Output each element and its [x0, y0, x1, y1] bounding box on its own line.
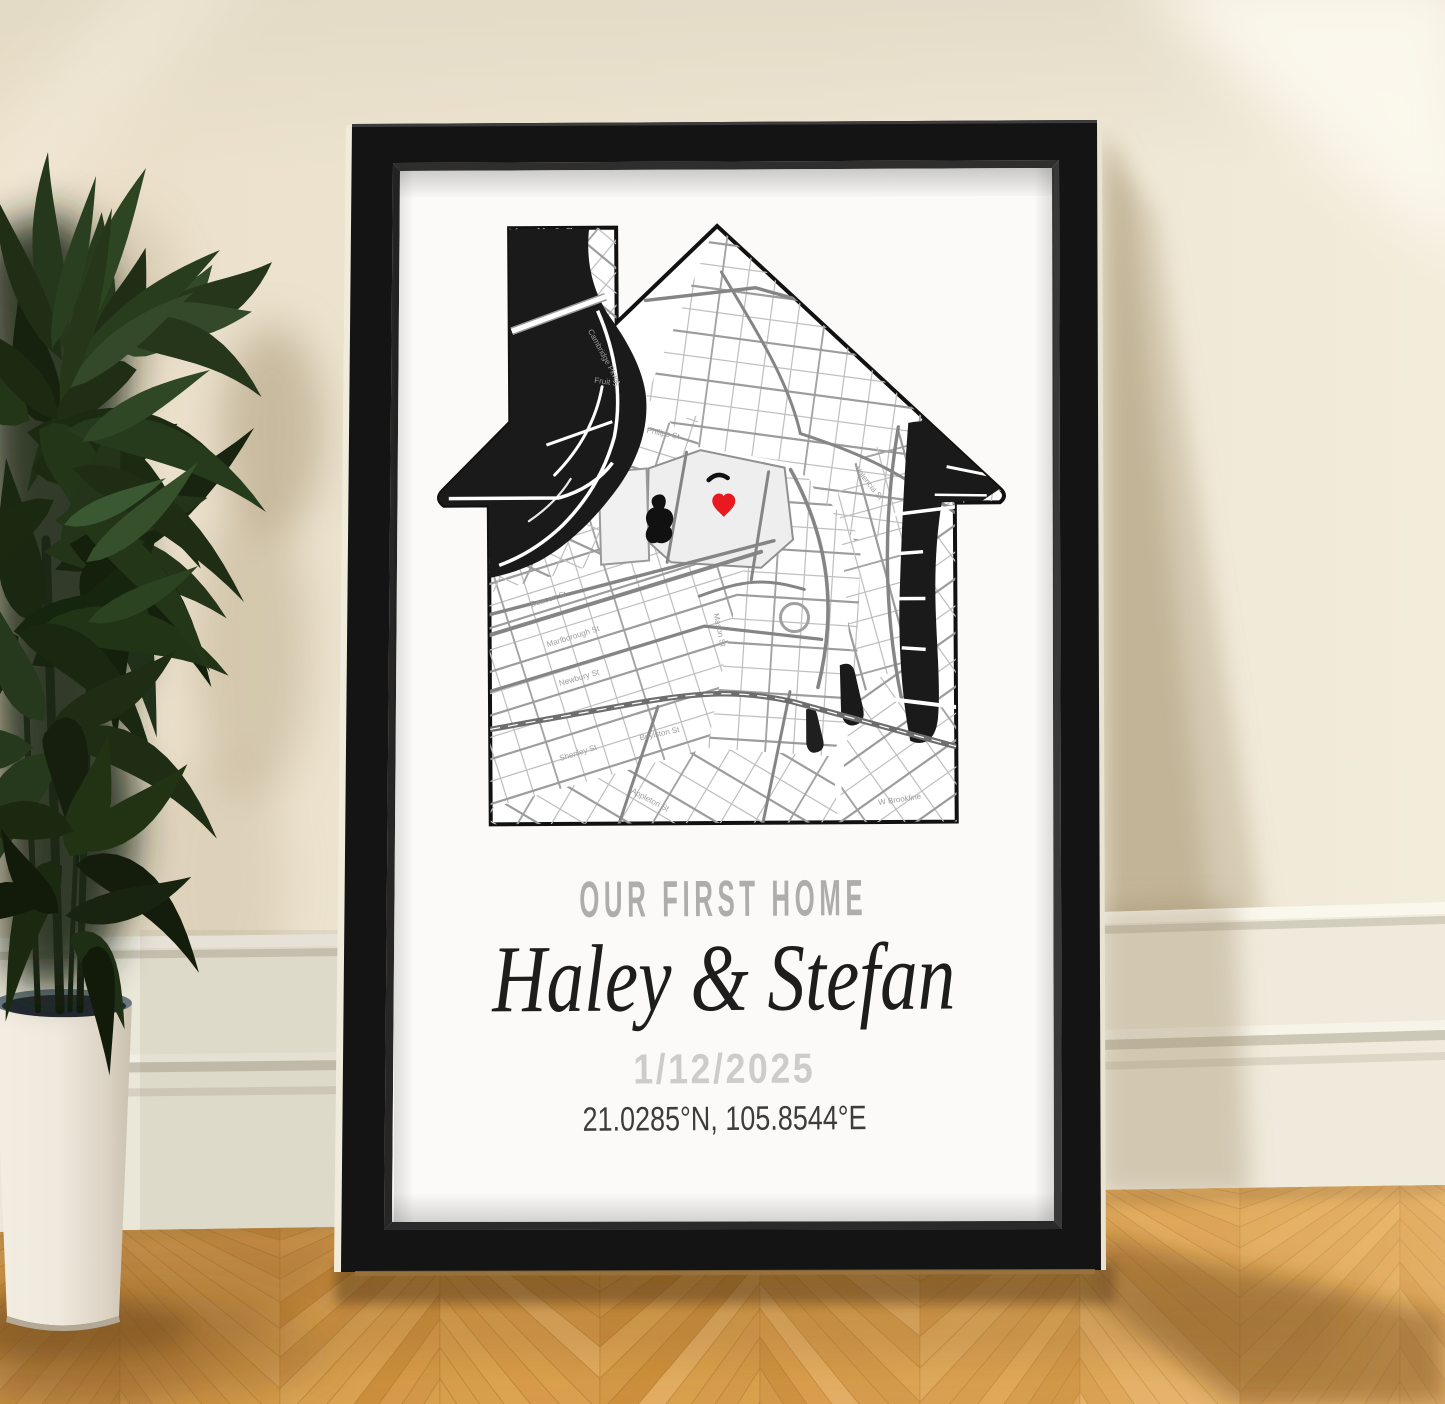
- svg-text:OUR FIRST HOME: OUR FIRST HOME: [579, 869, 867, 928]
- svg-text:Haley & Stefan: Haley & Stefan: [490, 923, 955, 1033]
- svg-text:21.0285°N, 105.8544°E: 21.0285°N, 105.8544°E: [582, 1099, 866, 1139]
- svg-text:1/12/2025: 1/12/2025: [633, 1044, 815, 1092]
